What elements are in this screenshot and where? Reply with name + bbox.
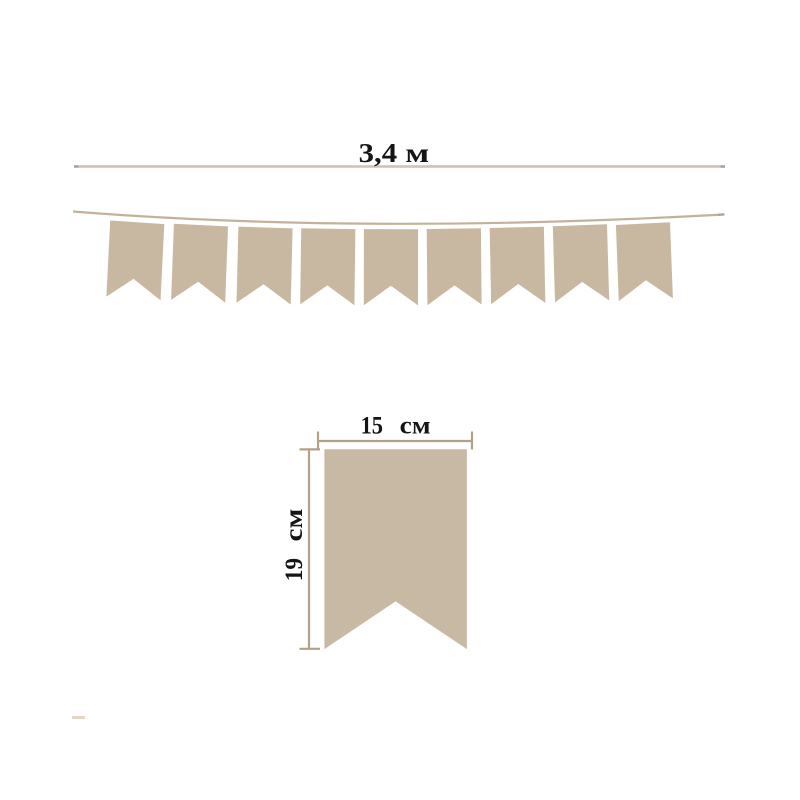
svg-text:см: см <box>281 509 308 542</box>
svg-text:3,4: 3,4 <box>359 138 397 168</box>
svg-text:15: 15 <box>361 413 383 440</box>
svg-text:см: см <box>400 413 431 440</box>
svg-text:19: 19 <box>281 558 308 581</box>
svg-text:м: м <box>405 138 429 168</box>
